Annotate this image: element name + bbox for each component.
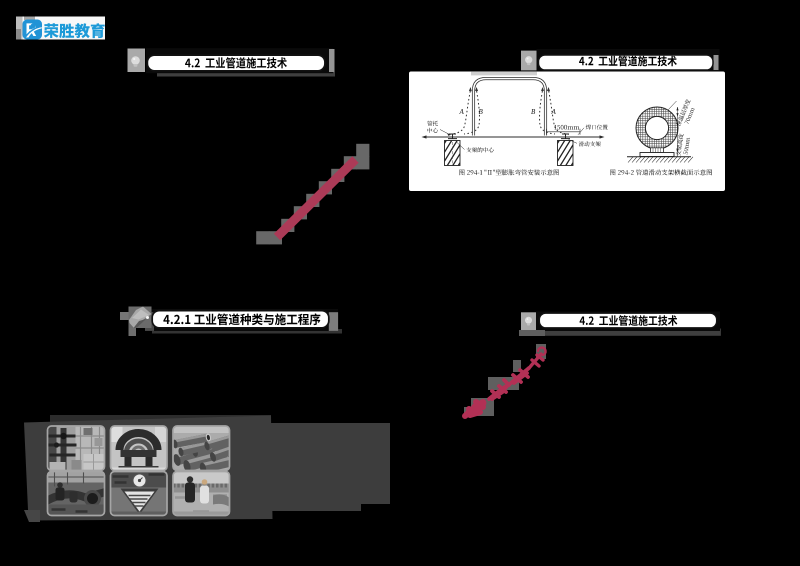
- svg-text:A: A: [459, 108, 465, 116]
- svg-text:B: B: [479, 108, 484, 116]
- svg-text:B: B: [531, 108, 536, 116]
- svg-text:A: A: [551, 108, 557, 116]
